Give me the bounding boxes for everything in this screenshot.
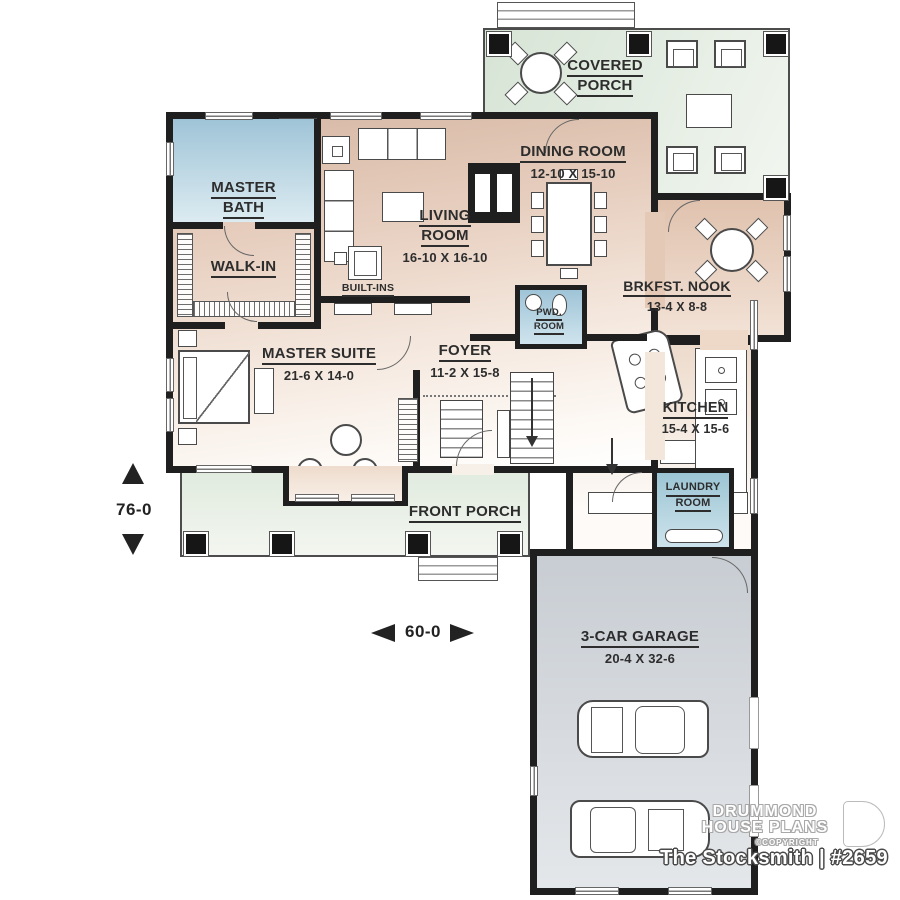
- window-marker: [166, 358, 174, 392]
- stair-arrow-head: [526, 436, 538, 447]
- bath-side-wall: [314, 119, 321, 329]
- window-marker: [166, 398, 174, 432]
- dining-table: [546, 182, 592, 266]
- stair-arrow-line: [531, 378, 533, 436]
- dining-chair: [531, 240, 544, 257]
- porch-post: [627, 32, 651, 56]
- label-master-suite: MASTER SUITE 21-6 X 14-0: [252, 345, 386, 383]
- bed: [178, 350, 250, 424]
- plan-title: The Stocksmith | #2659: [652, 847, 896, 870]
- built-in-unit: [394, 303, 432, 315]
- foyer-closet: [398, 398, 418, 462]
- brand-logo-d-icon: [844, 802, 884, 846]
- porch-post: [270, 532, 294, 556]
- porch-post: [184, 532, 208, 556]
- porch-post: [498, 532, 522, 556]
- living-hall-wall: [321, 296, 470, 303]
- label-pwd: PWD. ROOM: [516, 307, 582, 335]
- label-garage: 3-CAR GARAGE 20-4 X 32-6: [572, 628, 708, 666]
- window-marker: [750, 478, 758, 514]
- label-foyer: FOYER 11-2 X 15-8: [423, 342, 507, 380]
- nook-table: [710, 228, 754, 272]
- label-brkfst: BRKFST. NOOK 13-4 X 8-8: [613, 278, 741, 314]
- porch-armchair: [666, 146, 698, 174]
- label-living: LIVING ROOM 16-10 X 16-10: [383, 207, 507, 265]
- dim-arrow-up: [122, 463, 144, 484]
- dining-chair: [594, 240, 607, 257]
- stair-hall-wall: [587, 334, 647, 341]
- cooktop-burner: [628, 352, 643, 367]
- porch-post: [406, 532, 430, 556]
- car: [577, 700, 709, 758]
- closet-rod: [177, 233, 193, 317]
- front-porch-steps: [418, 557, 498, 581]
- porch-post: [487, 32, 511, 56]
- dim-arrow-right: [450, 624, 474, 642]
- dim-depth: 76-0: [100, 500, 168, 520]
- garage-door-opening: [749, 697, 759, 749]
- window-marker: [330, 112, 382, 120]
- corner-table: [322, 136, 350, 164]
- walkin-wall: [173, 322, 225, 329]
- nightstand: [178, 330, 197, 347]
- bay-window-glass: [351, 494, 395, 502]
- dining-chair: [594, 216, 607, 233]
- brand-line2: HOUSE PLANS: [686, 819, 844, 837]
- window-marker: [575, 887, 619, 895]
- dining-chair: [531, 192, 544, 209]
- built-in-unit: [334, 303, 372, 315]
- closet-rod: [295, 233, 311, 317]
- porch-armchair: [666, 40, 698, 68]
- laundry-sink: [665, 529, 723, 543]
- bath-wall: [255, 222, 321, 229]
- sitting-table: [330, 424, 362, 456]
- hall-arrow-line: [611, 438, 613, 464]
- ottoman: [334, 252, 347, 265]
- floor-plan-canvas: COVERED PORCH DINING ROOM 12-10 X 15-10 …: [0, 0, 900, 900]
- label-walk-in: WALK-IN: [196, 258, 291, 278]
- dining-foyer-wall: [470, 334, 515, 341]
- dim-width: 60-0: [398, 622, 448, 642]
- kitchen-sink: [705, 357, 737, 383]
- window-marker: [196, 465, 252, 473]
- window-marker: [205, 112, 253, 120]
- opening-nook-kitchen: [700, 330, 748, 350]
- label-kitchen: KITCHEN 15-4 X 15-6: [648, 400, 743, 437]
- porch-post: [764, 176, 788, 200]
- window-marker: [530, 766, 538, 796]
- master-bay-window: [283, 466, 408, 506]
- nightstand: [178, 428, 197, 445]
- bath-wall: [173, 222, 223, 229]
- label-built-ins: BUILT-INS: [330, 282, 406, 297]
- porch-armchair: [714, 146, 746, 174]
- label-front-porch: FRONT PORCH: [405, 503, 525, 523]
- window-marker: [668, 887, 712, 895]
- walkin-wall: [258, 322, 321, 329]
- porch-post: [764, 32, 788, 56]
- label-covered-porch: COVERED PORCH: [545, 57, 665, 97]
- covered-porch-steps: [497, 2, 635, 28]
- dim-arrow-down: [122, 534, 144, 555]
- label-dining: DINING ROOM 12-10 X 15-10: [503, 143, 643, 181]
- window-marker: [783, 215, 791, 251]
- dim-arrow-left: [371, 624, 395, 642]
- label-master-bath: MASTER BATH: [196, 179, 291, 219]
- hall-arrow-head: [606, 464, 618, 475]
- window-marker: [166, 142, 174, 176]
- window-marker: [783, 256, 791, 292]
- brand-copyright: ©COPYRIGHT: [742, 838, 832, 847]
- foyer-bench: [497, 410, 510, 458]
- bay-window-glass: [295, 494, 339, 502]
- porch-coffee-table: [686, 94, 732, 128]
- dining-chair: [560, 268, 578, 279]
- window-marker: [750, 300, 758, 350]
- window-marker: [420, 112, 472, 120]
- dining-chair: [531, 216, 544, 233]
- sofa: [358, 128, 446, 160]
- porch-armchair: [714, 40, 746, 68]
- dining-chair: [594, 192, 607, 209]
- label-laundry: LAUNDRY ROOM: [655, 481, 731, 512]
- armchair: [348, 246, 382, 280]
